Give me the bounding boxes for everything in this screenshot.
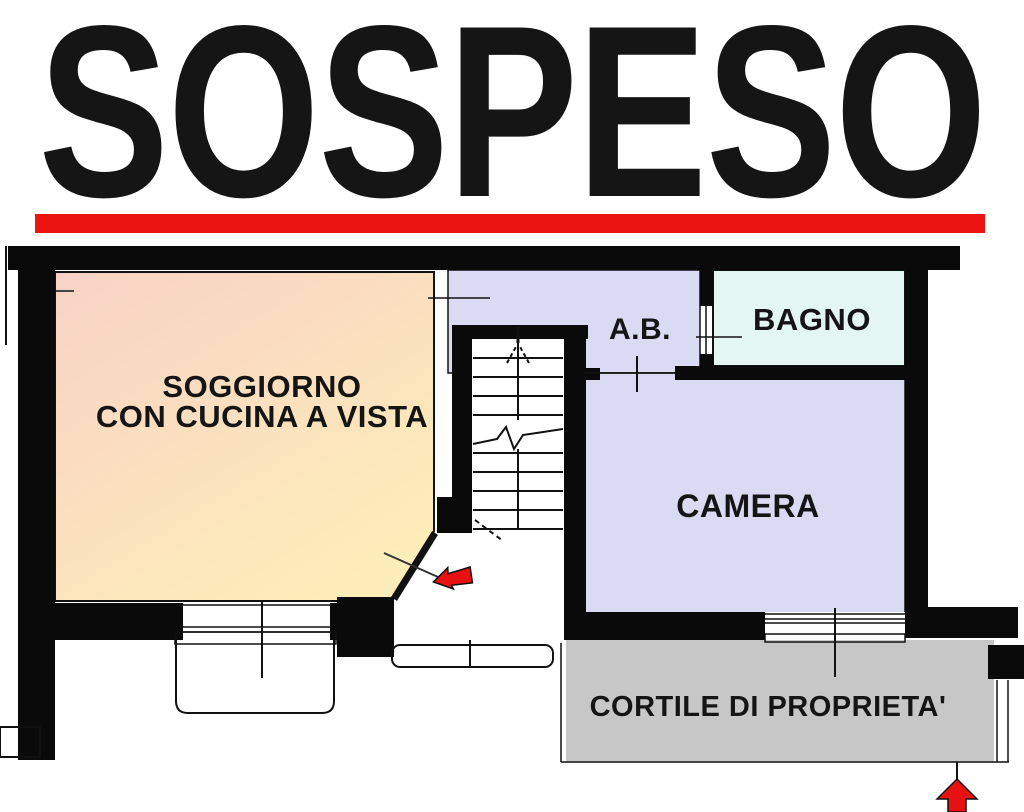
floorplan-page: SOSPESO [0, 0, 1024, 812]
access-direction-arrow-icon [937, 762, 977, 812]
wall-stair-right-stub [586, 368, 600, 380]
banner-title: SOSPESO [38, 0, 985, 249]
wall-stair-left [452, 325, 472, 497]
window-soggiorno [175, 601, 336, 678]
wall-top [8, 246, 960, 270]
wall-left [18, 246, 55, 760]
stair-break-band [472, 417, 564, 452]
wall-entrance-corner-block [337, 597, 394, 657]
label-bagno: BAGNO [753, 302, 871, 337]
room-soggiorno [55, 272, 434, 601]
wall-stair-left-foot [437, 497, 472, 533]
entrance-landing-outline [392, 645, 553, 667]
label-soggiorno-line2: CON CUCINA A VISTA [96, 399, 428, 434]
wall-stair-right [564, 325, 586, 640]
wall-soggiorno-bottom-left [55, 603, 183, 640]
terrace-outline [176, 640, 334, 713]
entrance-arrow-icon [431, 563, 474, 593]
wall-bagno-camera [675, 366, 905, 380]
label-camera: CAMERA [676, 488, 819, 524]
label-antibagno: A.B. [609, 313, 671, 346]
staircase [472, 327, 564, 640]
wall-right-foot [905, 607, 1018, 638]
label-cortile: CORTILE DI PROPRIETA' [590, 691, 947, 723]
banner-underline [35, 214, 985, 233]
suspended-banner: SOSPESO [35, 0, 986, 249]
wall-ab-bagno-upper [700, 270, 713, 306]
wall-cortile-pillar [988, 645, 1024, 679]
floor-plan-canvas: SOSPESO [0, 0, 1024, 812]
window-opening [183, 603, 330, 640]
wall-right [905, 270, 928, 610]
